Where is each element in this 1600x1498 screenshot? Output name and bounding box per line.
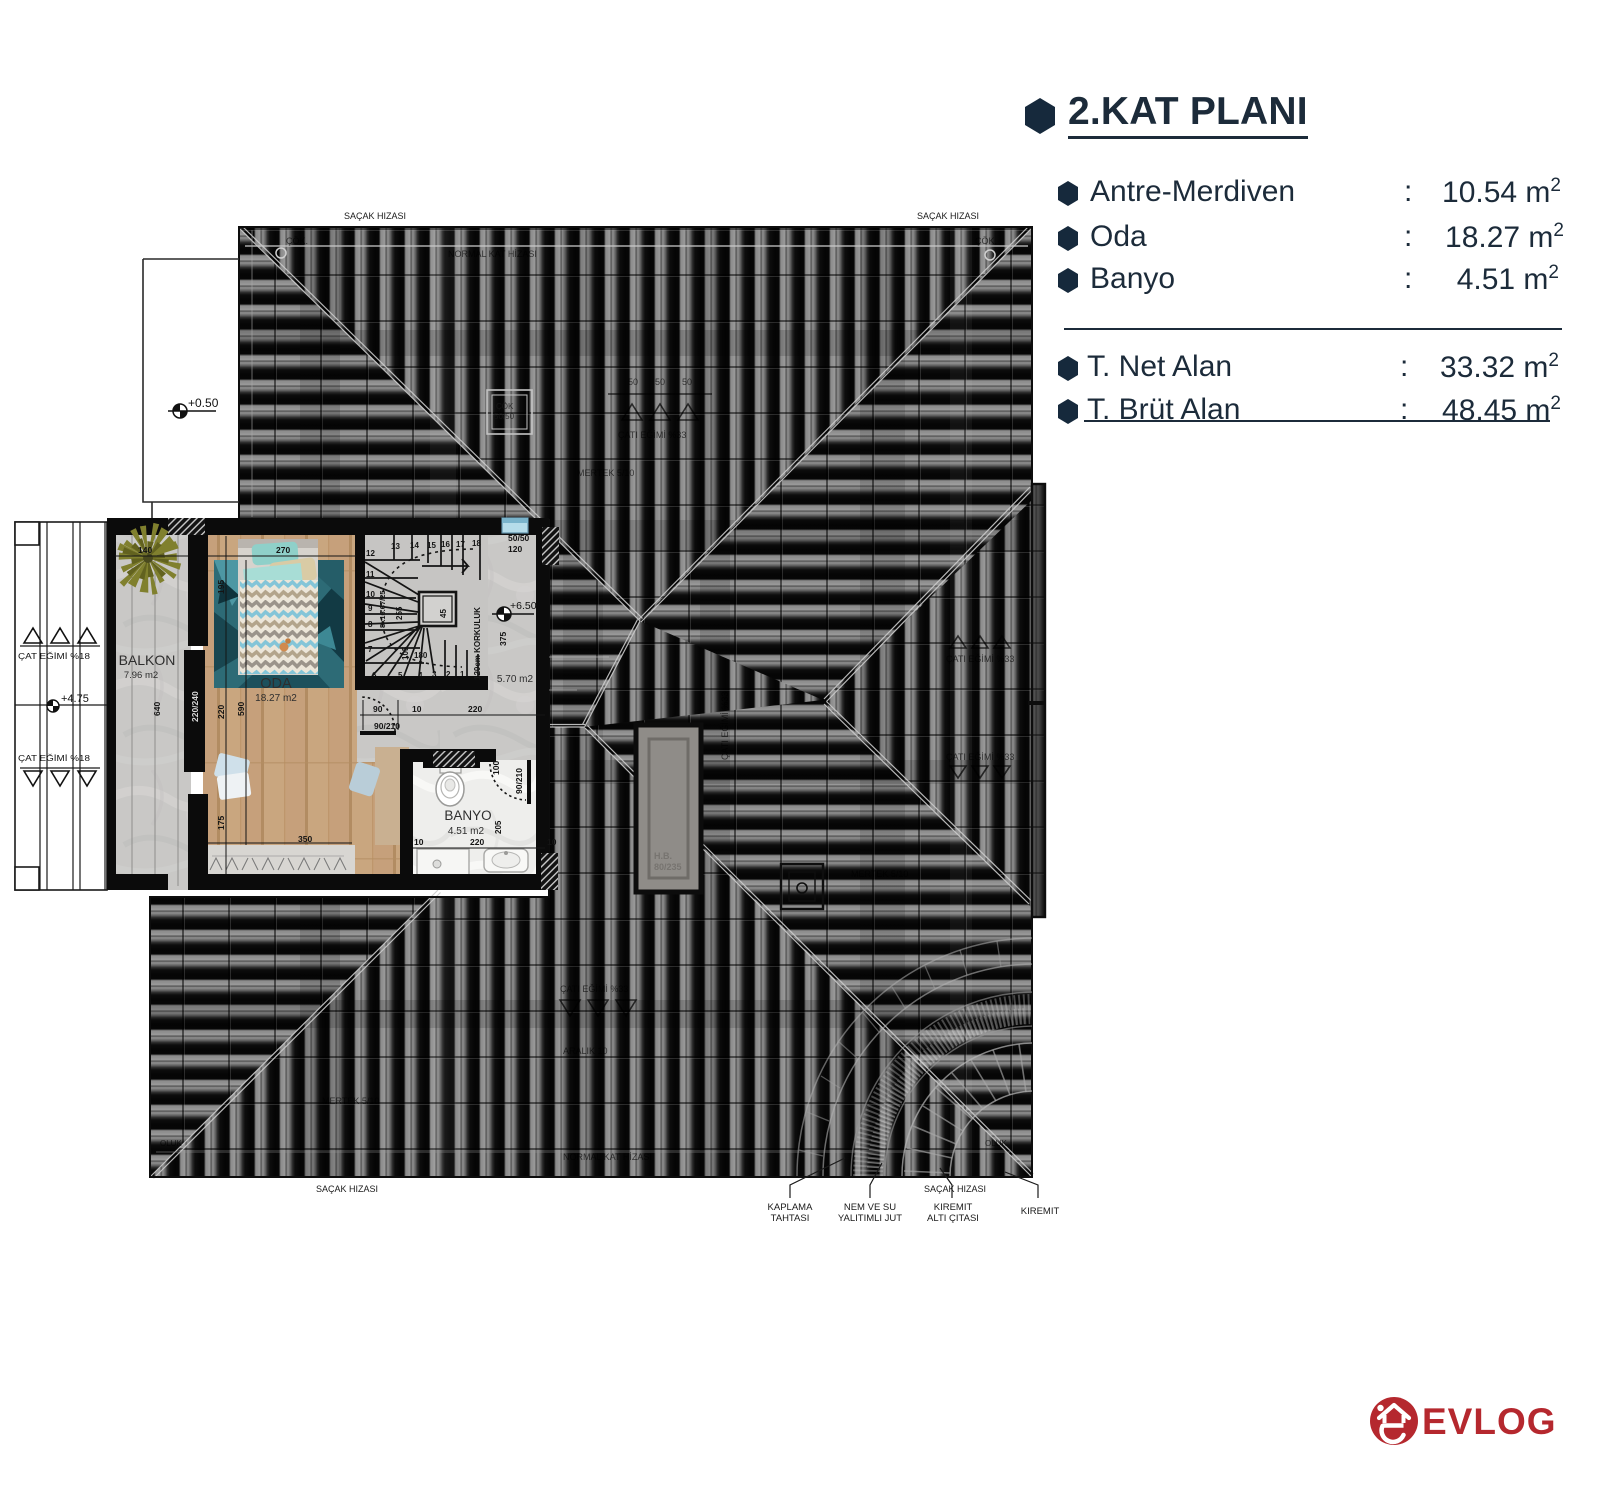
svg-text:120: 120 [508, 544, 522, 554]
svg-text:KIREMIT: KIREMIT [1021, 1206, 1060, 1217]
svg-text:13: 13 [391, 542, 400, 551]
svg-text:18: 18 [472, 539, 481, 548]
svg-text:590: 590 [236, 702, 246, 716]
svg-text:4.51 m2: 4.51 m2 [448, 826, 485, 837]
svg-text:120cm KORKULUK: 120cm KORKULUK [473, 607, 482, 680]
svg-text:ÇATI EĞİMİ %33: ÇATI EĞİMİ %33 [946, 752, 1014, 762]
svg-text:90/210: 90/210 [374, 721, 400, 731]
svg-text:NORMAL KAT HİZASI: NORMAL KAT HİZASI [563, 1152, 652, 1162]
svg-text:SAÇAK HIZASI: SAÇAK HIZASI [344, 211, 406, 221]
svg-text:12: 12 [366, 549, 375, 558]
svg-text:50/50: 50/50 [508, 533, 530, 543]
svg-text:ÇÖK: ÇÖK [496, 402, 514, 411]
svg-text:195: 195 [216, 580, 226, 594]
svg-text:90/210: 90/210 [514, 768, 524, 794]
svg-text:ALTI ÇITASI: ALTI ÇITASI [927, 1213, 979, 1224]
svg-text:14: 14 [410, 541, 419, 550]
svg-text:50: 50 [655, 377, 665, 387]
svg-text:ÇATI EĞİMİ %33: ÇATI EĞİMİ %33 [560, 984, 628, 994]
svg-text:ÇATI EĞİMİ %33: ÇATI EĞİMİ %33 [618, 430, 686, 440]
svg-text:NEM VE SU: NEM VE SU [844, 1202, 896, 1213]
svg-text:MERTEK 5/10: MERTEK 5/10 [577, 468, 634, 478]
svg-text:MERTEK 5/10: MERTEK 5/10 [851, 869, 908, 879]
svg-text:NORMAL KAT HİZASI: NORMAL KAT HİZASI [448, 249, 537, 259]
svg-text:18.27 m2: 18.27 m2 [255, 693, 297, 704]
svg-text:7.96 m2: 7.96 m2 [124, 670, 158, 681]
svg-text:175: 175 [216, 816, 226, 830]
svg-text:BALKON: BALKON [119, 652, 176, 668]
svg-text:ÇAT EĞİMİ %18: ÇAT EĞİMİ %18 [18, 651, 90, 661]
svg-text:+0.50: +0.50 [188, 396, 219, 410]
svg-text:9: 9 [368, 604, 373, 613]
svg-text:100: 100 [491, 761, 501, 775]
svg-text:8: 8 [368, 620, 373, 629]
svg-text:ÇAT EĞİMİ %18: ÇAT EĞİMİ %18 [18, 753, 90, 763]
svg-text:OLUK: OLUK [160, 1139, 182, 1148]
svg-text:10: 10 [547, 837, 557, 847]
svg-text:15: 15 [427, 541, 436, 550]
svg-text:ÇÖK.: ÇÖK. [975, 236, 997, 246]
svg-text:16: 16 [441, 540, 450, 549]
svg-text:50/50: 50/50 [494, 412, 515, 421]
svg-text:50: 50 [628, 377, 638, 387]
svg-text:220: 220 [470, 837, 484, 847]
svg-text:YALITIMLI JUT: YALITIMLI JUT [838, 1213, 902, 1224]
svg-text:5.70 m2: 5.70 m2 [497, 674, 534, 685]
svg-text:270: 270 [276, 545, 290, 555]
svg-text:11: 11 [366, 570, 375, 579]
svg-text:8x16.67/25: 8x16.67/25 [378, 590, 387, 628]
svg-text:ÇATI EĞİMİ %33: ÇATI EĞİMİ %33 [720, 692, 730, 760]
svg-text:90: 90 [373, 704, 383, 714]
svg-text:TAHTASI: TAHTASI [771, 1213, 810, 1224]
svg-text:KAPLAMA: KAPLAMA [768, 1202, 814, 1213]
svg-text:SAÇAK HIZASI: SAÇAK HIZASI [917, 211, 979, 221]
svg-text:180: 180 [414, 651, 428, 660]
svg-text:+6.50: +6.50 [510, 600, 537, 612]
svg-text:7: 7 [368, 645, 373, 654]
svg-text:10: 10 [414, 837, 424, 847]
svg-text:+4.75: +4.75 [61, 693, 89, 705]
svg-text:255: 255 [395, 606, 404, 620]
svg-text:EVLOG: EVLOG [1422, 1401, 1557, 1442]
svg-text:220: 220 [216, 705, 226, 719]
svg-text:ODA: ODA [260, 676, 292, 692]
svg-text:205: 205 [494, 820, 503, 834]
svg-text:45: 45 [439, 609, 448, 618]
svg-text:10: 10 [366, 590, 375, 599]
svg-text:17: 17 [456, 540, 465, 549]
svg-text:ARALIK 10: ARALIK 10 [563, 1046, 608, 1056]
svg-text:BANYO: BANYO [444, 808, 491, 823]
svg-text:H.B.: H.B. [654, 851, 672, 861]
svg-text:ÇATI EĞİMİ %33: ÇATI EĞİMİ %33 [946, 654, 1014, 664]
svg-text:375: 375 [498, 632, 508, 646]
svg-text:350: 350 [298, 834, 312, 844]
svg-text:10: 10 [412, 704, 422, 714]
svg-text:50: 50 [682, 377, 692, 387]
svg-text:80/235: 80/235 [654, 862, 682, 872]
svg-text:ÇÖK.: ÇÖK. [286, 236, 308, 246]
svg-text:640: 640 [152, 702, 162, 716]
svg-text:SAÇAK HIZASI: SAÇAK HIZASI [924, 1184, 986, 1194]
svg-text:140: 140 [138, 545, 152, 555]
svg-text:220: 220 [468, 704, 482, 714]
svg-text:105: 105 [401, 646, 410, 660]
svg-text:MERTEK 5/10: MERTEK 5/10 [322, 1096, 379, 1106]
svg-text:KIREMIT: KIREMIT [934, 1202, 973, 1213]
svg-text:220/240: 220/240 [190, 691, 200, 722]
svg-text:SAÇAK HIZASI: SAÇAK HIZASI [316, 1184, 378, 1194]
svg-text:OLUK: OLUK [985, 1139, 1007, 1148]
